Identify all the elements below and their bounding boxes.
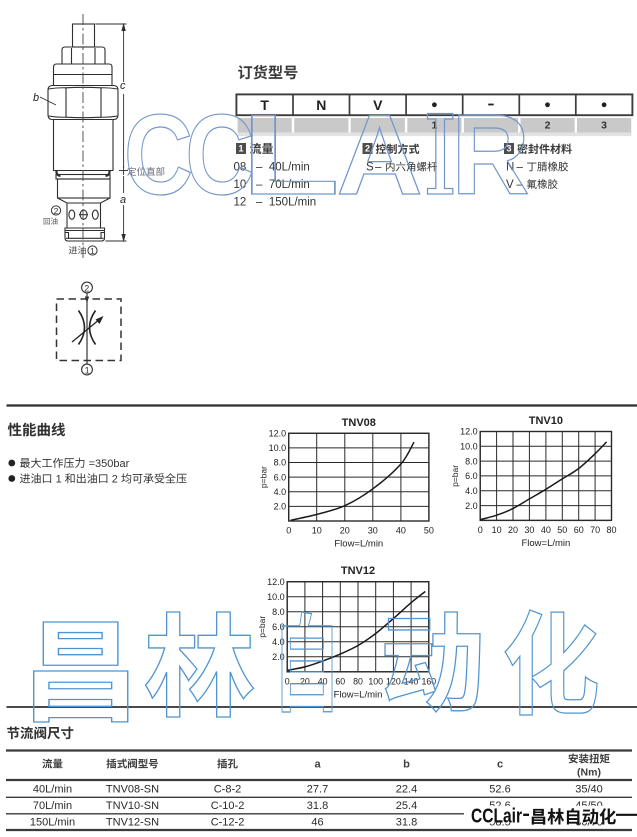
svg-text:100: 100: [368, 676, 383, 686]
svg-text:1: 1: [431, 120, 437, 132]
svg-text:b: b: [33, 92, 39, 104]
svg-text:30: 30: [524, 525, 534, 535]
svg-text:8.0: 8.0: [274, 458, 287, 468]
svg-text:=350bar: =350bar: [89, 458, 130, 470]
svg-text:12.0: 12.0: [460, 427, 478, 437]
svg-text:12.0: 12.0: [267, 577, 285, 587]
svg-text:Flow=L/min: Flow=L/min: [521, 538, 570, 549]
svg-text:80: 80: [353, 676, 363, 686]
svg-text:60: 60: [574, 525, 584, 535]
svg-text:6.0: 6.0: [272, 622, 285, 632]
svg-text:TNV10-SN: TNV10-SN: [106, 800, 159, 812]
svg-text:p=bar: p=bar: [257, 616, 267, 638]
svg-text:2: 2: [545, 120, 551, 132]
svg-text:12.0: 12.0: [269, 429, 287, 439]
svg-text:c: c: [120, 80, 126, 92]
svg-text:20: 20: [508, 525, 518, 535]
svg-text:10.0: 10.0: [460, 442, 478, 452]
svg-text:27.7: 27.7: [307, 784, 328, 796]
svg-text:1: 1: [56, 474, 62, 486]
svg-text:40L/min: 40L/min: [33, 784, 72, 796]
svg-text:31.8: 31.8: [396, 816, 417, 828]
svg-text:3: 3: [601, 120, 607, 132]
svg-text:6.0: 6.0: [465, 471, 478, 481]
svg-text:a: a: [314, 759, 321, 771]
svg-text:40: 40: [541, 525, 551, 535]
svg-text:CCLair: CCLair: [471, 804, 522, 827]
svg-text:0: 0: [285, 676, 290, 686]
svg-text:120: 120: [386, 676, 401, 686]
svg-text:2: 2: [54, 206, 59, 216]
svg-text:TNV10: TNV10: [529, 415, 563, 427]
svg-text:35/40: 35/40: [575, 784, 603, 796]
svg-text:20: 20: [340, 526, 350, 536]
svg-text:c: c: [497, 759, 503, 771]
svg-text:1: 1: [90, 246, 95, 256]
svg-text:TNV12-SN: TNV12-SN: [106, 816, 159, 828]
svg-text:4.0: 4.0: [274, 487, 287, 497]
svg-text:L: L: [241, 91, 340, 219]
svg-text:C-12-2: C-12-2: [211, 816, 245, 828]
svg-text:2.0: 2.0: [272, 652, 285, 662]
svg-text:31.8: 31.8: [307, 800, 328, 812]
svg-text:0: 0: [286, 526, 291, 536]
svg-text:TNV08-SN: TNV08-SN: [106, 784, 159, 796]
svg-text:8.0: 8.0: [272, 607, 285, 617]
svg-text:80: 80: [606, 525, 616, 535]
svg-text:2.0: 2.0: [465, 501, 478, 511]
svg-text:46: 46: [311, 816, 323, 828]
svg-text:30: 30: [368, 526, 378, 536]
svg-text:C-8-2: C-8-2: [214, 784, 242, 796]
svg-text:0: 0: [478, 525, 483, 535]
svg-text:R: R: [452, 90, 530, 218]
svg-text:40: 40: [318, 676, 328, 686]
svg-text:6.0: 6.0: [274, 472, 287, 482]
svg-text:10.0: 10.0: [269, 443, 287, 453]
svg-text:50: 50: [424, 526, 434, 536]
svg-text:TNV08: TNV08: [342, 417, 376, 429]
svg-text:Flow=L/min: Flow=L/min: [334, 689, 383, 700]
svg-text:Flow=L/min: Flow=L/min: [334, 539, 383, 550]
svg-text:4.0: 4.0: [465, 486, 478, 496]
svg-text:70: 70: [590, 525, 600, 535]
svg-text:(Nm): (Nm): [577, 767, 601, 779]
svg-text:C: C: [124, 92, 193, 219]
svg-text:150L/min: 150L/min: [30, 816, 75, 828]
svg-text:p=bar: p=bar: [450, 465, 460, 487]
svg-text:C-10-2: C-10-2: [211, 800, 245, 812]
svg-text:25.4: 25.4: [396, 800, 417, 812]
svg-text:70L/min: 70L/min: [33, 800, 72, 812]
svg-text:2: 2: [84, 283, 89, 293]
svg-text:10.0: 10.0: [267, 592, 285, 602]
svg-text:A: A: [336, 91, 422, 219]
svg-text:22.4: 22.4: [396, 784, 417, 796]
svg-text:50: 50: [557, 525, 567, 535]
svg-text:52.6: 52.6: [489, 784, 510, 796]
svg-text:8.0: 8.0: [465, 456, 478, 466]
svg-text:2: 2: [112, 474, 118, 486]
svg-text:2.0: 2.0: [274, 502, 287, 512]
svg-text:TNV12: TNV12: [341, 565, 375, 577]
svg-text:40: 40: [396, 526, 406, 536]
svg-text:4.0: 4.0: [272, 637, 285, 647]
svg-text:p=bar: p=bar: [259, 466, 269, 488]
svg-text:10: 10: [492, 525, 502, 535]
svg-text:b: b: [403, 759, 410, 771]
svg-text:60: 60: [335, 676, 345, 686]
svg-text:10: 10: [312, 526, 322, 536]
svg-text:20: 20: [300, 676, 310, 686]
svg-text:1: 1: [85, 365, 90, 375]
